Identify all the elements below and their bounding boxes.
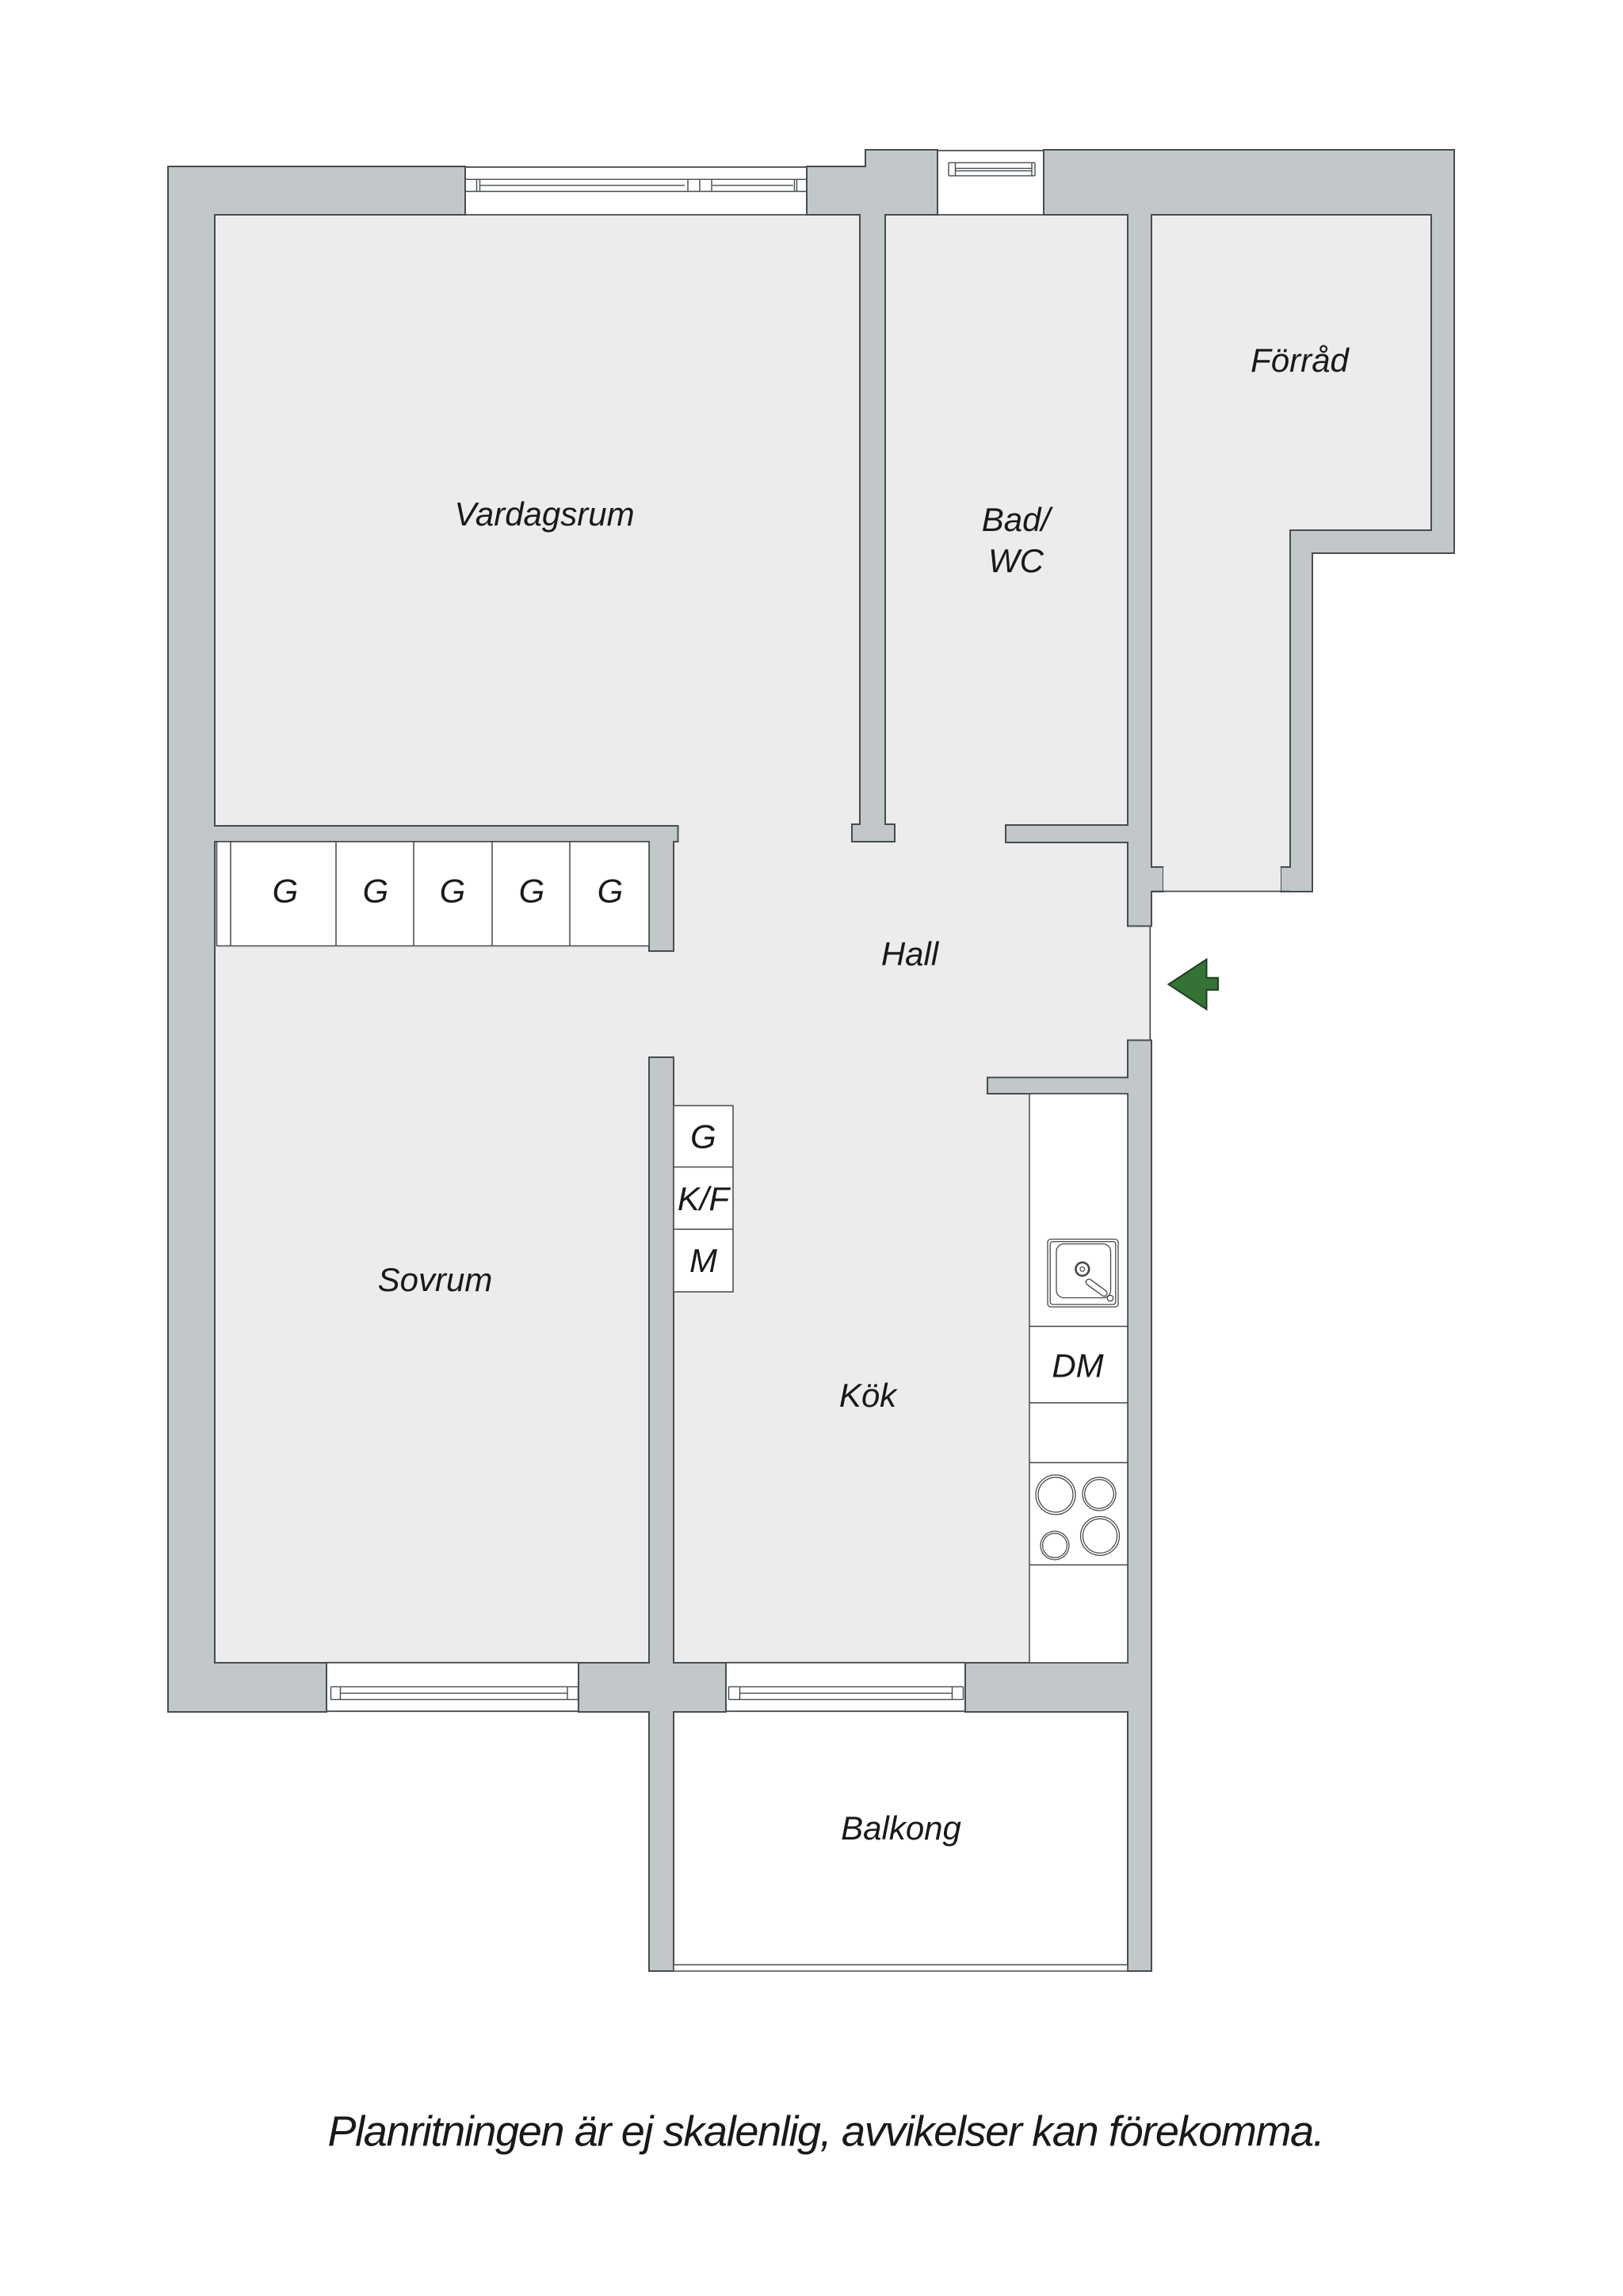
- svg-text:Kök: Kök: [839, 1377, 898, 1414]
- svg-text:Bad/: Bad/: [982, 501, 1054, 538]
- svg-text:G: G: [519, 873, 545, 910]
- svg-text:M: M: [689, 1242, 717, 1279]
- svg-text:Hall: Hall: [881, 935, 940, 972]
- svg-text:G: G: [440, 873, 466, 910]
- svg-text:G: G: [690, 1118, 716, 1156]
- svg-text:G: G: [598, 873, 624, 910]
- svg-text:DM: DM: [1052, 1347, 1103, 1385]
- svg-text:Sovrum: Sovrum: [378, 1261, 493, 1298]
- svg-text:Vardagsrum: Vardagsrum: [454, 495, 634, 533]
- svg-text:G: G: [363, 873, 389, 910]
- svg-text:Balkong: Balkong: [841, 1809, 961, 1847]
- svg-text:Förråd: Förråd: [1251, 342, 1350, 379]
- svg-text:Planritningen är ej skalenlig,: Planritningen är ej skalenlig, avvikelse…: [327, 2108, 1323, 2156]
- svg-text:G: G: [273, 873, 299, 910]
- svg-text:K/F: K/F: [678, 1180, 731, 1217]
- svg-text:WC: WC: [988, 542, 1044, 579]
